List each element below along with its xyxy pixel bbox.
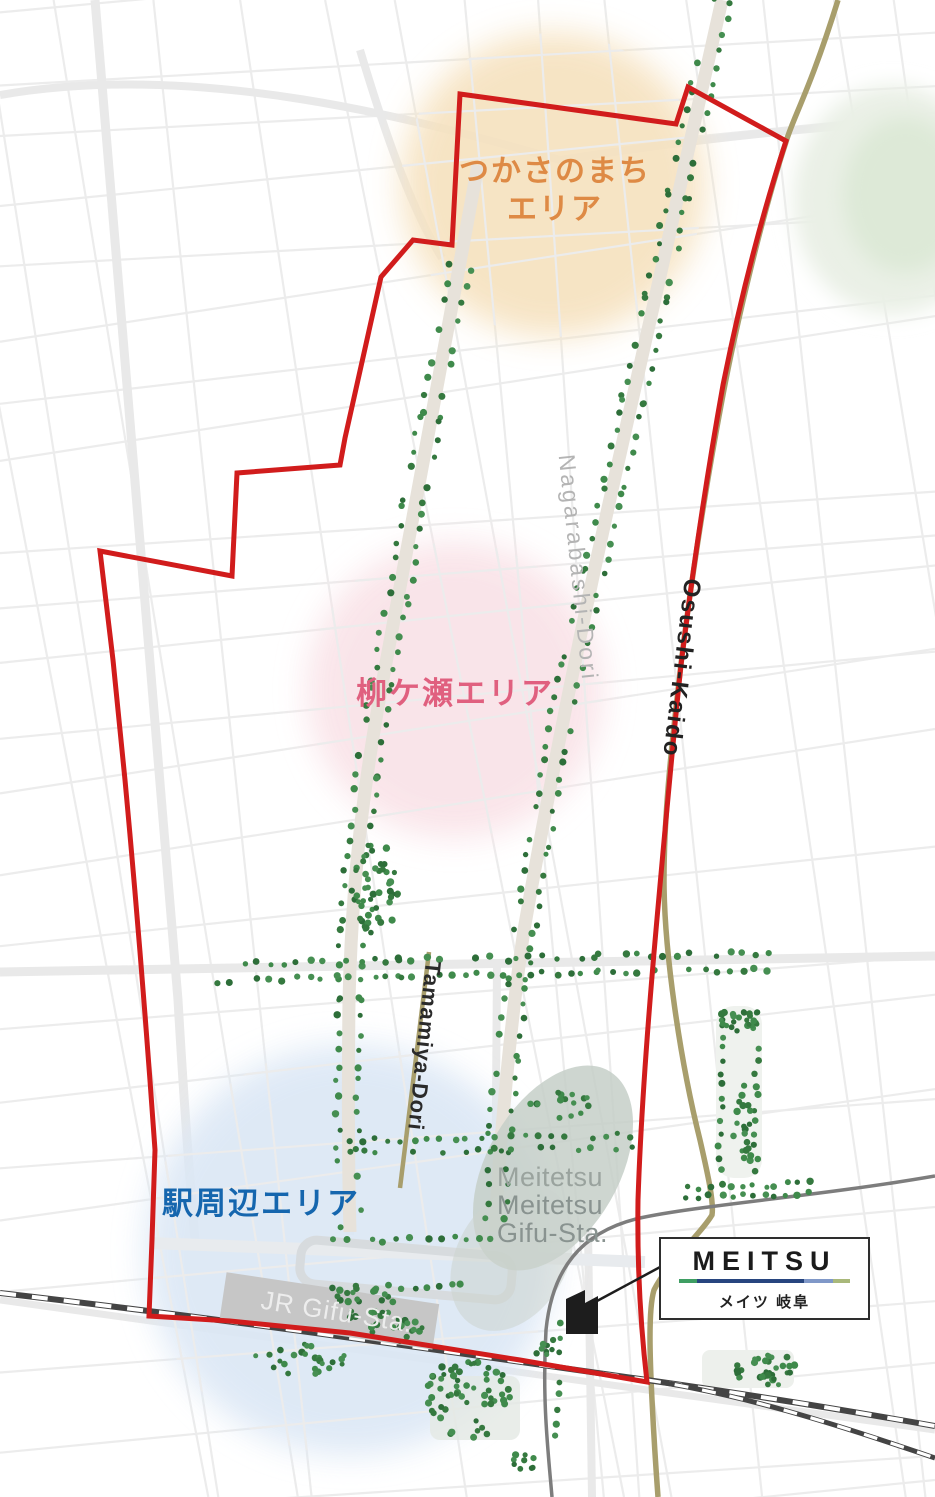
logo-bar-segment [804, 1279, 833, 1283]
meitsu-logo-subtitle: メイツ 岐阜 [661, 1291, 868, 1312]
meitsu-logo-name: MEITSU [661, 1248, 868, 1275]
logo-bar-segment [833, 1279, 850, 1283]
park-south [702, 1350, 794, 1388]
logo-bar-segment [679, 1279, 698, 1283]
logo-bar-segment [697, 1279, 804, 1283]
meitsu-logo-box: MEITSU メイツ 岐阜 [659, 1237, 870, 1320]
meitsu-logo-bar [679, 1279, 851, 1283]
gifu-area-map: つかさのまち エリア 柳ケ瀬エリア 駅周辺エリア Nagarabashi-Dor… [0, 0, 935, 1497]
